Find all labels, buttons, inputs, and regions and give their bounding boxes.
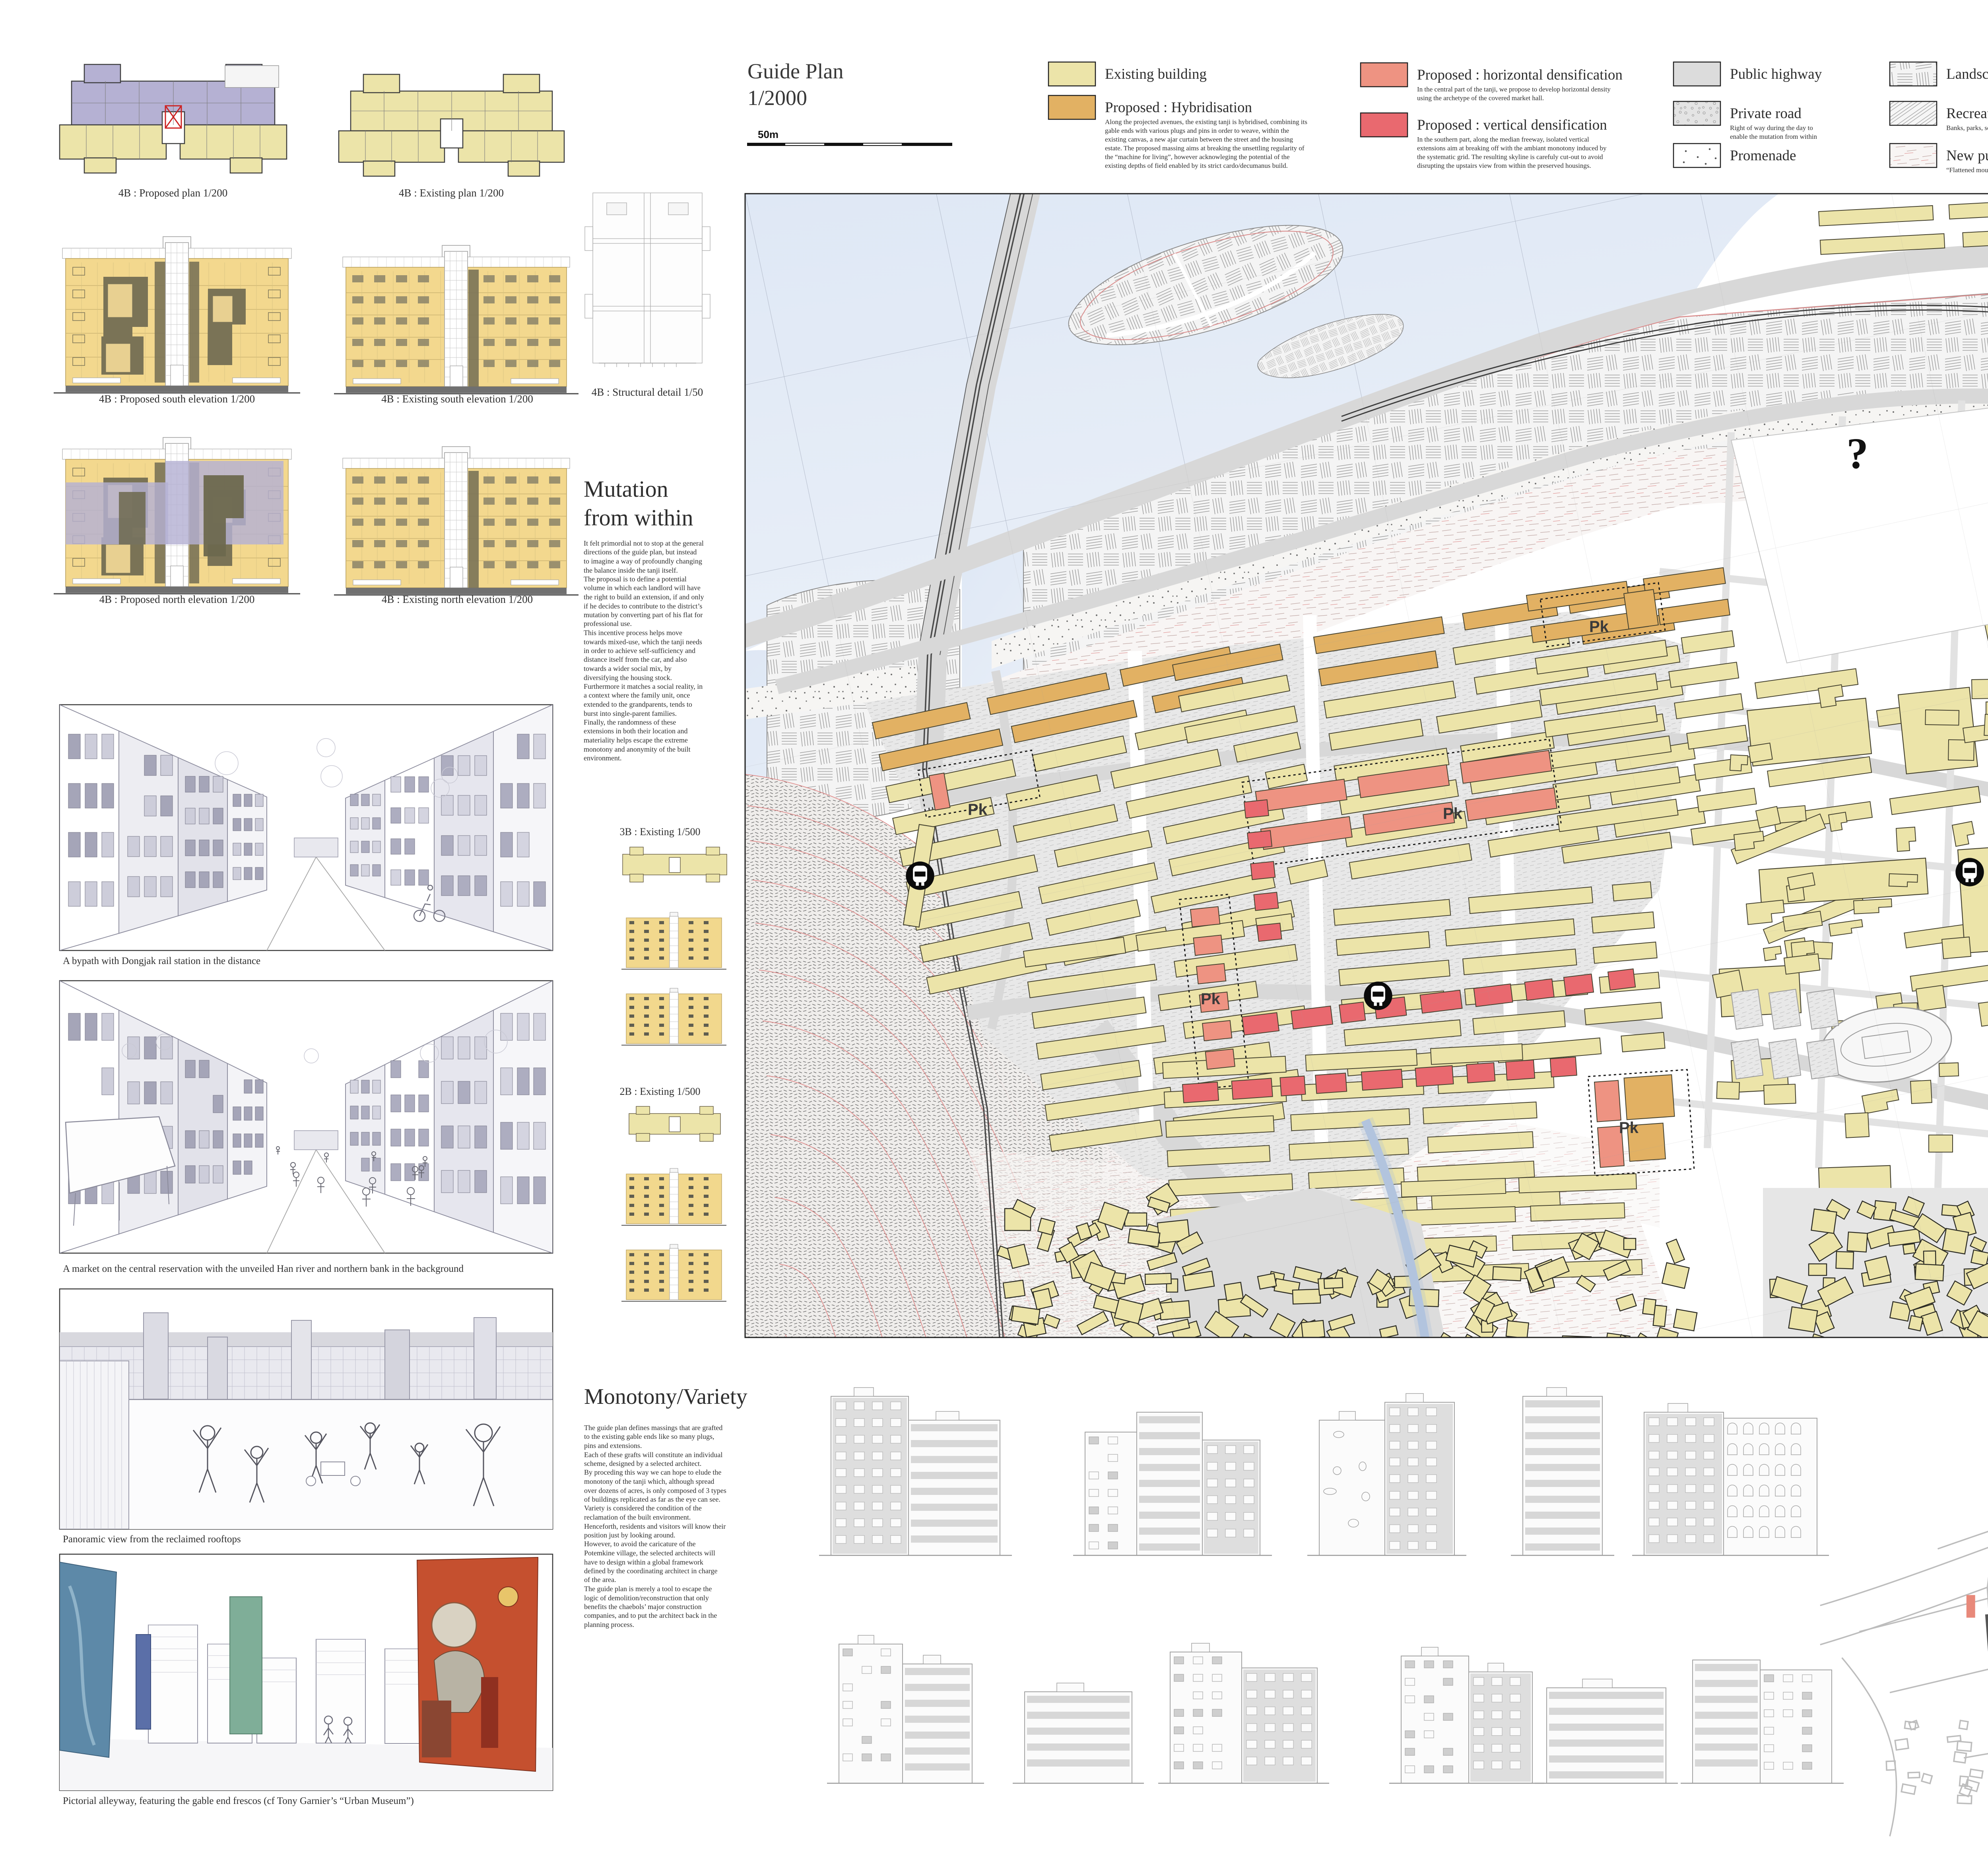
svg-text:Monotony/Variety: Monotony/Variety (584, 1384, 747, 1409)
svg-text:mutation by converting part of: mutation by converting part of his flat … (584, 611, 703, 619)
svg-text:It felt primordial not to stop: It felt primordial not to stop at the ge… (584, 539, 704, 547)
svg-text:4B : Proposed plan 1/200: 4B : Proposed plan 1/200 (118, 187, 228, 199)
svg-text:The proposal is to define a po: The proposal is to define a potential (584, 575, 687, 583)
svg-text:Right of way during the day to: Right of way during the day to (1730, 124, 1813, 132)
svg-text:logic of demolition/reconstruc: logic of demolition/reconstruction that … (584, 1594, 709, 1602)
svg-text:the systematic grid. The resul: the systematic grid. The resulting skyli… (1417, 153, 1603, 161)
svg-text:Pictorial alleyway, featuring: Pictorial alleyway, featuring the gable … (63, 1796, 414, 1806)
svg-text:companies, and to put the arch: companies, and to put the architect back… (584, 1611, 717, 1619)
svg-text:pins and extensions.: pins and extensions. (584, 1442, 642, 1450)
svg-text:reclamation of the built envir: reclamation of the built environment. (584, 1513, 691, 1521)
svg-text:Proposed : vertical densificat: Proposed : vertical densification (1417, 117, 1607, 133)
svg-text:Pk: Pk (1201, 990, 1221, 1008)
svg-text:This incentive process helps m: This incentive process helps move (584, 629, 682, 637)
svg-text:In the southern part, along th: In the southern part, along the median f… (1417, 136, 1589, 143)
svg-text:4B : Structural detail 1/50: 4B : Structural detail 1/50 (592, 386, 703, 398)
svg-text:extended to the grandparents,: extended to the grandparents, tends to (584, 700, 692, 708)
svg-text:of buildings replicated as far: of buildings replicated as far as the ey… (584, 1495, 720, 1503)
svg-text:By proceding this way we can h: By proceding this way we can hope to elu… (584, 1468, 721, 1476)
svg-text:In the central part of the tan: In the central part of the tanji, we pro… (1417, 86, 1611, 93)
svg-text:have to design within a global: have to design within a global framework (584, 1558, 703, 1566)
svg-text:towards mixed-use, which the t: towards mixed-use, which the tanji needs (584, 638, 702, 646)
svg-text:3B : Existing 1/500: 3B : Existing 1/500 (620, 826, 701, 838)
svg-text:volume in which each landlord: volume in which each landlord will have (584, 584, 701, 592)
svg-text:the “machine for living”, howe: the “machine for living”, however acknow… (1105, 153, 1290, 161)
svg-text:4B : Existing south elevation: 4B : Existing south elevation 1/200 (381, 393, 533, 405)
svg-text:Potemkine village, the selecte: Potemkine village, the selected architec… (584, 1549, 715, 1557)
svg-text:directions of the guide plan,: directions of the guide plan, but instea… (584, 548, 697, 556)
svg-text:4B : Proposed north elevation: 4B : Proposed north elevation 1/200 (99, 593, 255, 605)
svg-text:Promenade: Promenade (1730, 148, 1796, 164)
svg-text:extensions in both their locat: extensions in both their location and (584, 727, 687, 735)
svg-text:to the existing gable ends lik: to the existing gable ends like so many … (584, 1432, 714, 1440)
svg-text:Existing building: Existing building (1105, 66, 1207, 82)
svg-text:Recreationnal area: Recreationnal area (1946, 105, 1988, 122)
svg-text:existing canvas, a new ajar cu: existing canvas, a new ajar curtain betw… (1105, 136, 1293, 143)
svg-text:4B : Proposed south elevation: 4B : Proposed south elevation 1/200 (99, 393, 255, 405)
svg-text:to imagine a way of profoundly: to imagine a way of profoundly changing (584, 557, 702, 565)
svg-text:enable the mutation from withi: enable the mutation from within (1730, 133, 1817, 140)
svg-text:if he decides to contribute to: if he decides to contribute to the distr… (584, 602, 702, 610)
svg-text:Finally, the randomness of the: Finally, the randomness of these (584, 718, 676, 726)
svg-text:Pk: Pk (1619, 1119, 1639, 1137)
svg-text:defined by the coordinating ar: defined by the coordinating architect in… (584, 1567, 718, 1575)
svg-text:scheme, designed by a selected: scheme, designed by a selected architect… (584, 1460, 701, 1467)
svg-text:environment.: environment. (584, 754, 621, 762)
svg-text:Private road: Private road (1730, 105, 1802, 122)
svg-text:“Flattened mound”, terraces, m: “Flattened mound”, terraces, markets, st… (1946, 166, 1988, 174)
svg-text:1/2000: 1/2000 (747, 86, 807, 110)
svg-text:Proposed : Hybridisation: Proposed : Hybridisation (1105, 99, 1252, 116)
svg-text:estate. The proposed massing a: estate. The proposed massing aims at bre… (1105, 144, 1305, 152)
svg-text:Pk: Pk (968, 801, 988, 818)
svg-text:existing depths of field enabl: existing depths of field enabled by its … (1105, 162, 1288, 169)
svg-text:2B : Existing 1/500: 2B : Existing 1/500 (620, 1086, 701, 1097)
svg-text:Pk: Pk (1589, 618, 1609, 636)
svg-text:Guide Plan: Guide Plan (747, 59, 843, 83)
svg-text:The guide plan is merely a too: The guide plan is merely a tool to escap… (584, 1585, 712, 1593)
svg-text:monotony of the tanji which, a: monotony of the tanji which, although sp… (584, 1477, 714, 1485)
svg-text:the right to build an extensio: the right to build an extension, if and … (584, 593, 704, 601)
svg-text:burst into single-parent famil: burst into single-parent families. (584, 709, 677, 717)
svg-text:from within: from within (584, 505, 693, 531)
svg-text:Variety is considered the cond: Variety is considered the condition of t… (584, 1504, 702, 1512)
svg-text:A market on the central reserv: A market on the central reservation with… (63, 1263, 464, 1274)
svg-text:monotony and anonymity of the: monotony and anonymity of the built (584, 745, 690, 753)
svg-text:Henceforth, residents and visi: Henceforth, residents and visitors will … (584, 1522, 726, 1530)
svg-text:professional use.: professional use. (584, 620, 632, 628)
svg-text:Each of these grafts will cons: Each of these grafts will constitute an … (584, 1451, 722, 1459)
svg-text:4B : Existing plan 1/200: 4B : Existing plan 1/200 (399, 187, 504, 199)
svg-text:Along the projected avenues, t: Along the projected avenues, the existin… (1105, 118, 1307, 126)
svg-text:in order to achieve self-suffi: in order to achieve self-sufficiency and (584, 647, 695, 655)
svg-text:using the archetype of the cov: using the archetype of the covered marke… (1417, 94, 1544, 102)
svg-text:of the area.: of the area. (584, 1576, 616, 1584)
svg-text:towards a wider social mix, by: towards a wider social mix, by (584, 665, 672, 672)
svg-text:the balance inside the tanji i: the balance inside the tanji itself. (584, 566, 678, 574)
svg-text:extensions aim at breaking off: extensions aim at breaking off with the … (1417, 144, 1607, 152)
svg-text:Furthermore it matches a socia: Furthermore it matches a social reality,… (584, 682, 703, 690)
svg-text:4B : Existing north elevation: 4B : Existing north elevation 1/200 (382, 593, 533, 605)
svg-text:50m: 50m (758, 128, 779, 140)
svg-text:Proposed : horizontal densific: Proposed : horizontal densification (1417, 67, 1623, 83)
svg-text:gable ends with various plugs: gable ends with various plugs and pins i… (1105, 127, 1289, 134)
svg-text:diversifying the housing stock: diversifying the housing stock. (584, 674, 672, 682)
svg-text:a context where the family uni: a context where the family unit, once (584, 691, 690, 699)
svg-text:over dozens of acres, is only: over dozens of acres, is only composed o… (584, 1487, 726, 1495)
svg-text:However, to avoid the caricatu: However, to avoid the caricature of the (584, 1540, 696, 1548)
svg-text:disrupting the upstairs view f: disrupting the upstairs view from within… (1417, 162, 1591, 169)
svg-text:Banks, parks, squares: Banks, parks, squares (1946, 124, 1988, 132)
svg-text:New public space: New public space (1946, 148, 1988, 164)
svg-text:The guide plan defines massing: The guide plan defines massings that are… (584, 1424, 722, 1432)
svg-text:Pk: Pk (1443, 805, 1463, 822)
svg-text:planning process.: planning process. (584, 1621, 634, 1629)
svg-text:distance itself from the car,: distance itself from the car, and also (584, 655, 687, 663)
svg-text:Public highway: Public highway (1730, 66, 1822, 82)
svg-text:position just by looking aroun: position just by looking around. (584, 1531, 676, 1539)
svg-text:benefits the chaebols’ major c: benefits the chaebols’ major constructio… (584, 1603, 702, 1611)
svg-text:Panoramic view from the reclai: Panoramic view from the reclaimed roofto… (63, 1534, 241, 1545)
svg-text:Landscaped area: Landscaped area (1946, 66, 1988, 82)
svg-text:Mutation: Mutation (584, 476, 668, 502)
svg-text:materiality helps escape the e: materiality helps escape the extreme (584, 736, 688, 744)
svg-text:A bypath with Dongjak rail sta: A bypath with Dongjak rail station in th… (63, 956, 260, 966)
